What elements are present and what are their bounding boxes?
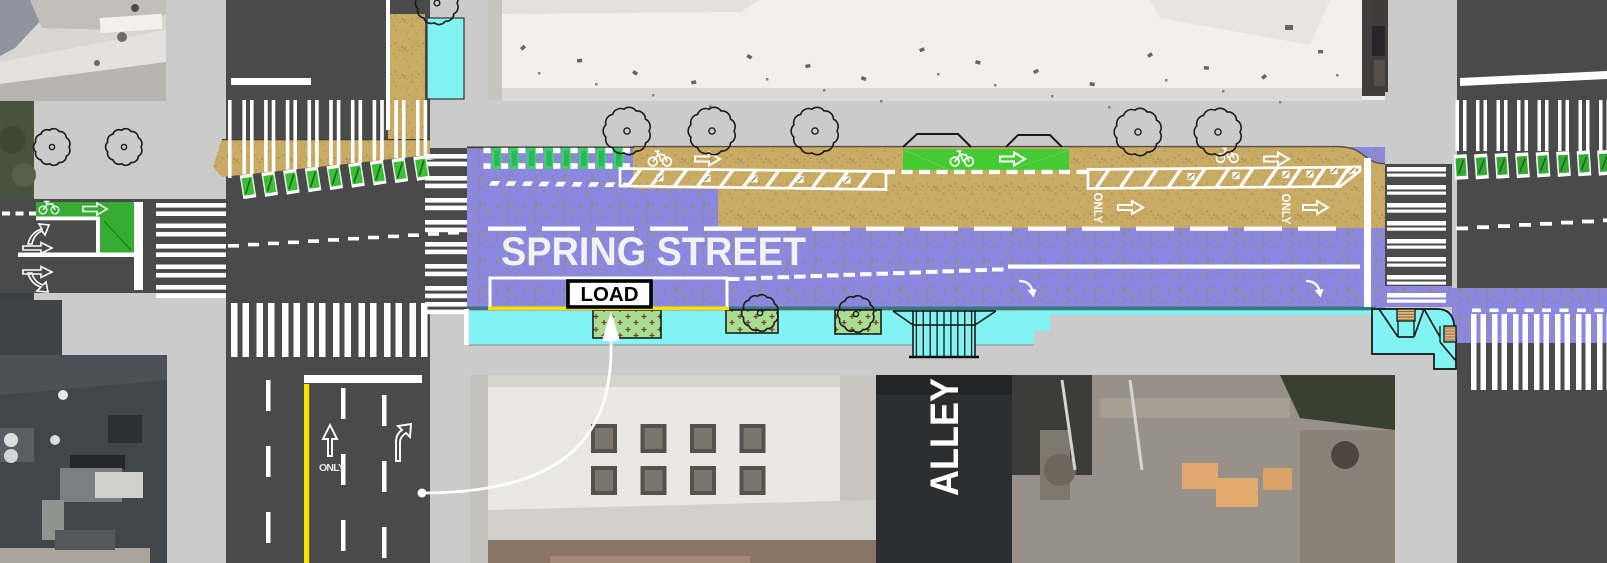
svg-text:SPRING STREET: SPRING STREET — [501, 230, 806, 274]
svg-text:ALLEY: ALLEY — [923, 378, 967, 496]
svg-text:ONLY: ONLY — [1091, 193, 1103, 224]
svg-text:ONLY: ONLY — [1279, 194, 1291, 225]
svg-text:ONLY: ONLY — [319, 462, 345, 474]
svg-text:LOAD: LOAD — [581, 284, 639, 306]
